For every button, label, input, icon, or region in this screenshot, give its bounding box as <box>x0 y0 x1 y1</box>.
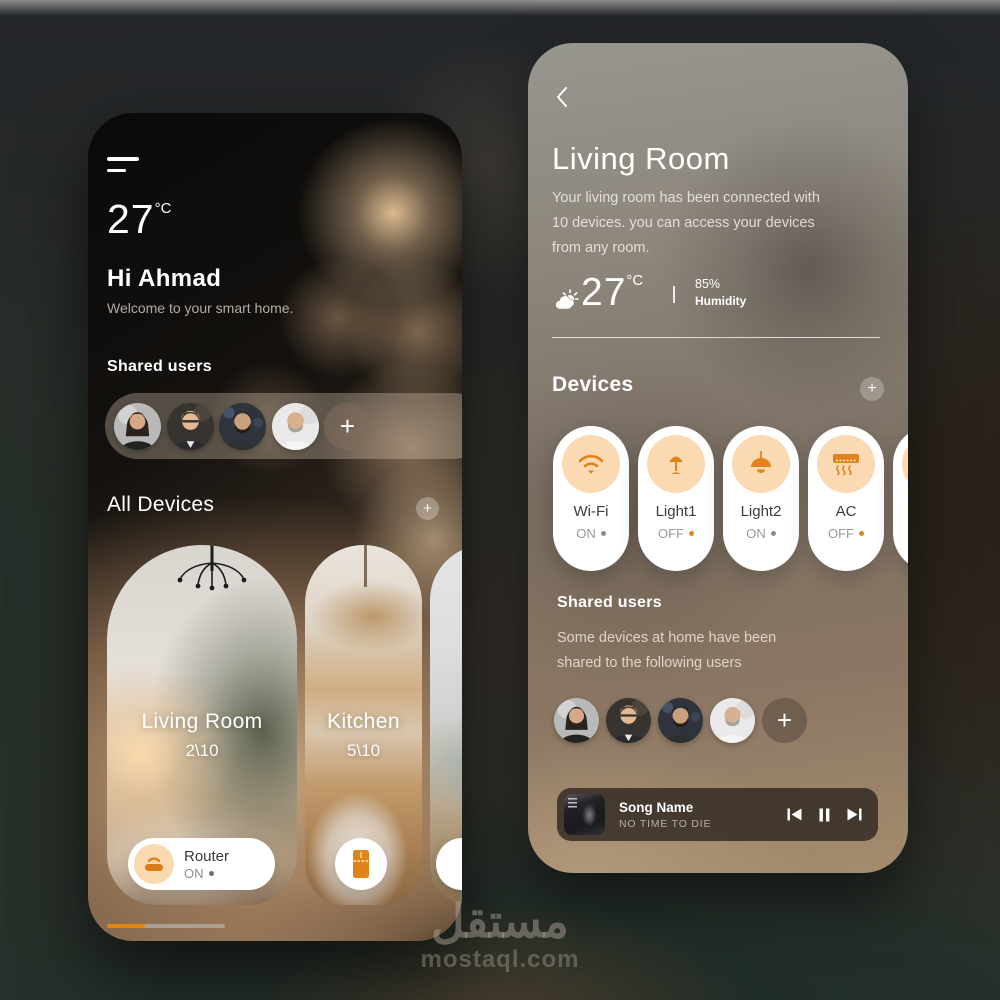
page-title: Living Room <box>552 141 730 177</box>
devices-section-label: Devices <box>552 373 634 397</box>
shared-users-label: Shared users <box>107 358 212 376</box>
avatar-image <box>167 403 214 450</box>
plus-icon: + <box>423 500 432 517</box>
device-status: OFF <box>808 526 884 541</box>
pendant-lamp-icon <box>747 450 775 478</box>
user-avatar-2[interactable] <box>606 698 651 743</box>
section-divider <box>552 337 880 338</box>
shared-users-row: + <box>554 698 807 743</box>
router-chip[interactable]: Router ON <box>128 838 275 890</box>
room-devices-count: 5\10 <box>305 741 422 761</box>
temperature-unit: °C <box>626 272 643 289</box>
divider <box>673 286 675 303</box>
shared-users-description: Some devices at home have been shared to… <box>557 626 776 676</box>
watermark-domain: mostaql.com <box>0 946 1000 974</box>
previous-track-button[interactable] <box>787 808 802 821</box>
back-button[interactable] <box>554 85 578 111</box>
avatar-image <box>272 403 319 450</box>
user-avatar-3[interactable] <box>658 698 703 743</box>
device-pill-light1[interactable]: Light1 OFF <box>638 426 714 571</box>
song-title: Song Name <box>619 800 711 815</box>
room-devices-count: 2\10 <box>107 741 297 761</box>
router-name: Router <box>184 848 229 865</box>
next-track-icon <box>847 808 862 821</box>
shared-users-label: Shared users <box>557 594 662 612</box>
home-screen: 27°C Hi Ahmad Welcome to your smart home… <box>88 113 462 941</box>
device-pill-wifi[interactable]: Wi-Fi ON <box>553 426 629 571</box>
fridge-chip[interactable] <box>335 838 387 890</box>
temperature-unit: °C <box>155 200 172 217</box>
shared-users-row: + <box>105 393 462 459</box>
carousel-progress-fill <box>107 924 145 928</box>
user-avatar-1[interactable] <box>114 403 161 450</box>
living-room-screen: Living Room Your living room has been co… <box>528 43 908 873</box>
previous-track-icon <box>787 808 802 821</box>
user-avatar-4[interactable] <box>710 698 755 743</box>
home-temperature: 27°C <box>107 196 171 243</box>
room-temperature: 27°C <box>581 271 643 315</box>
chandelier-decoration <box>172 545 252 593</box>
humidity-value: 85% <box>695 277 720 291</box>
back-chevron-icon <box>554 85 569 109</box>
room-card-dine[interactable]: dine <box>430 545 462 905</box>
rooms-carousel: Living Room 2\10 Router ON <box>107 545 462 905</box>
room-name: Living Room <box>107 710 297 734</box>
device-chip[interactable] <box>436 838 462 890</box>
room-name: dine <box>430 710 462 734</box>
device-pill-partial[interactable] <box>893 426 908 571</box>
user-avatar-1[interactable] <box>554 698 599 743</box>
device-pill-light2[interactable]: Light2 ON <box>723 426 799 571</box>
sun-cloud-icon <box>555 289 579 311</box>
temperature-value: 27 <box>581 271 626 314</box>
user-avatar-3[interactable] <box>219 403 266 450</box>
plus-icon: + <box>777 705 792 736</box>
player-controls <box>787 808 862 822</box>
avatar-image <box>554 698 599 743</box>
room-description: Your living room has been connected with… <box>552 186 820 261</box>
add-user-button[interactable]: + <box>324 403 371 450</box>
fridge-icon <box>350 848 372 880</box>
all-devices-label: All Devices <box>107 493 214 517</box>
add-device-button[interactable]: + <box>860 377 884 401</box>
room-card-kitchen[interactable]: Kitchen 5\10 <box>305 545 422 905</box>
device-status: OFF <box>638 526 714 541</box>
avatar-image <box>710 698 755 743</box>
smart-home-app-mockup: 27°C Hi Ahmad Welcome to your smart home… <box>0 0 1000 1000</box>
room-name: Kitchen <box>305 710 422 734</box>
album-art <box>564 794 605 835</box>
devices-row: Wi-Fi ON Light1 OFF <box>553 426 908 571</box>
table-lamp-icon <box>663 450 689 478</box>
wifi-icon <box>576 451 606 477</box>
pause-button[interactable] <box>819 808 830 822</box>
welcome-message: Welcome to your smart home. <box>107 300 293 316</box>
carousel-progress-bar <box>107 924 225 928</box>
hamburger-menu-icon[interactable] <box>107 157 141 172</box>
user-avatar-2[interactable] <box>167 403 214 450</box>
avatar-image <box>114 403 161 450</box>
plus-icon: + <box>867 380 876 398</box>
router-status: ON <box>184 866 229 881</box>
next-track-button[interactable] <box>847 808 862 821</box>
add-device-button[interactable]: + <box>416 497 439 520</box>
router-icon <box>141 853 167 875</box>
device-name: Light1 <box>638 503 714 520</box>
device-name: AC <box>808 503 884 520</box>
add-user-button[interactable]: + <box>762 698 807 743</box>
avatar-image <box>658 698 703 743</box>
pendant-rod-decoration <box>364 545 367 587</box>
device-name: Light2 <box>723 503 799 520</box>
greeting-title: Hi Ahmad <box>107 265 221 293</box>
device-status: ON <box>723 526 799 541</box>
avatar-image <box>219 403 266 450</box>
avatar-image <box>606 698 651 743</box>
room-card-living-room[interactable]: Living Room 2\10 Router ON <box>107 545 297 905</box>
temperature-value: 27 <box>107 196 155 242</box>
device-pill-ac[interactable]: AC OFF <box>808 426 884 571</box>
pause-icon <box>819 808 830 822</box>
ac-icon <box>831 451 861 477</box>
device-name: Wi-Fi <box>553 503 629 520</box>
device-status: ON <box>553 526 629 541</box>
plus-icon: + <box>340 411 355 442</box>
user-avatar-4[interactable] <box>272 403 319 450</box>
humidity-label: Humidity <box>695 294 746 308</box>
music-player[interactable]: Song Name NO TIME TO DIE <box>557 788 878 841</box>
song-subtitle: NO TIME TO DIE <box>619 818 711 830</box>
